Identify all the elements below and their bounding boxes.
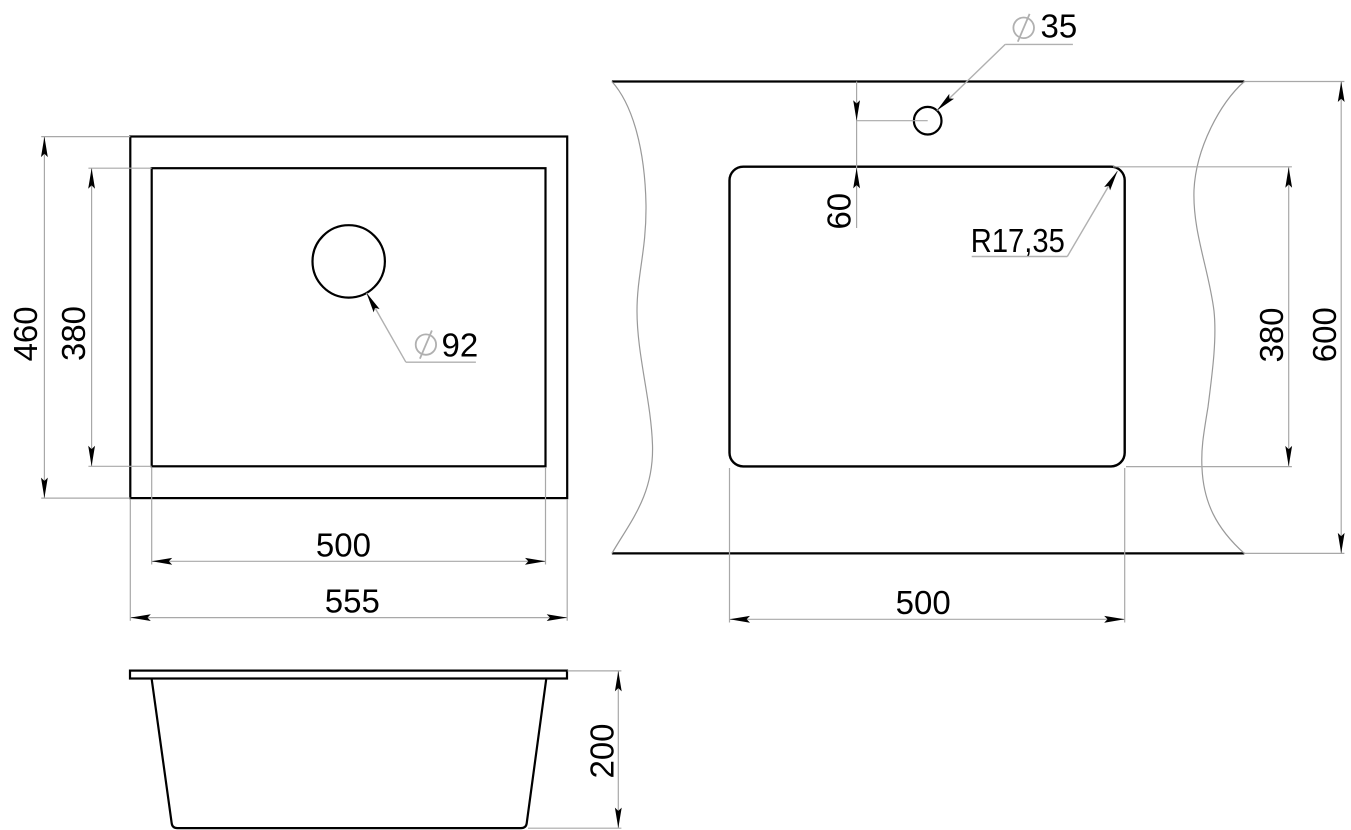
svg-text:380: 380 [55, 306, 92, 361]
svg-text:555: 555 [325, 582, 380, 619]
svg-text:35: 35 [1041, 8, 1078, 45]
svg-text:60: 60 [821, 193, 858, 230]
svg-text:460: 460 [7, 306, 44, 361]
svg-text:92: 92 [442, 327, 479, 364]
svg-text:R17,35: R17,35 [971, 222, 1065, 259]
svg-text:380: 380 [1253, 307, 1290, 362]
svg-text:200: 200 [583, 723, 620, 778]
svg-text:600: 600 [1306, 307, 1343, 362]
svg-text:500: 500 [316, 527, 371, 564]
svg-text:500: 500 [896, 584, 951, 621]
